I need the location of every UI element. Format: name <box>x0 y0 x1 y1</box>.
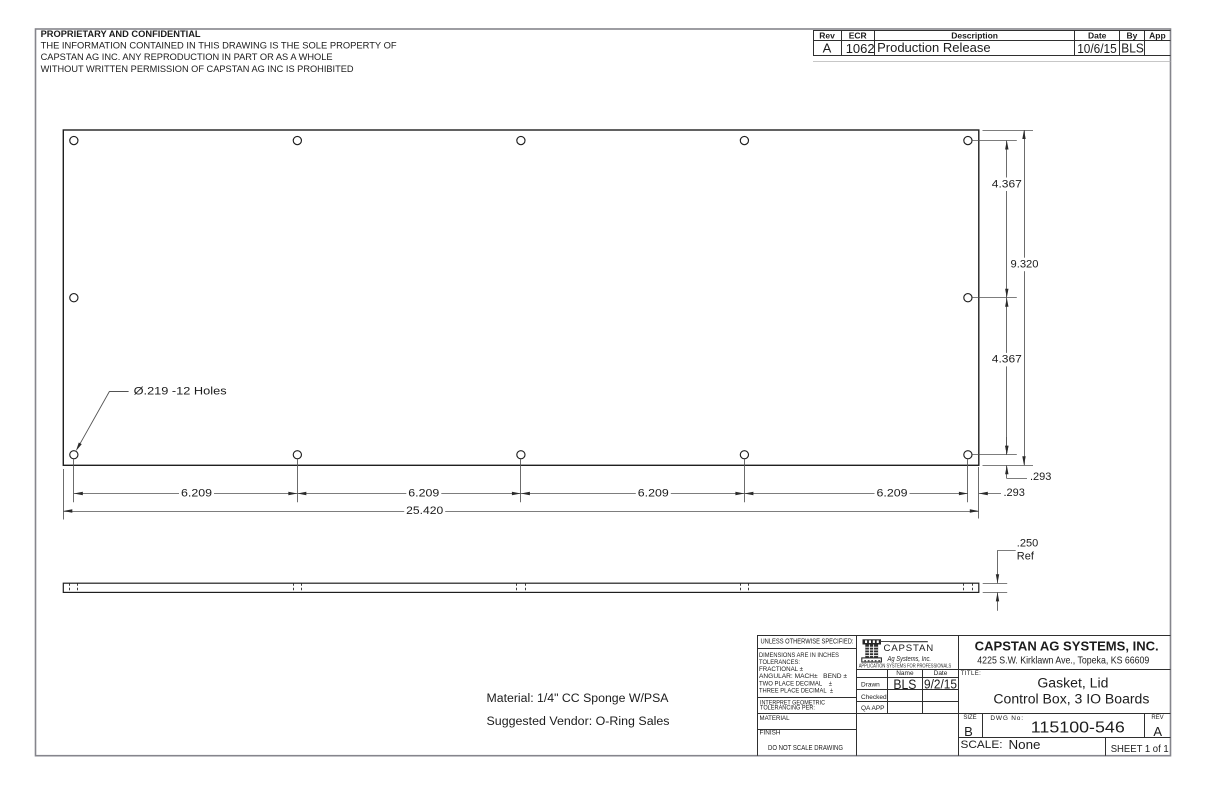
svg-text:Name: Name <box>896 670 914 677</box>
svg-text:4225 S.W. Kirklawn Ave., Topek: 4225 S.W. Kirklawn Ave., Topeka, KS 6660… <box>977 655 1149 667</box>
svg-text:Rev: Rev <box>819 31 835 41</box>
svg-text:6.209: 6.209 <box>181 487 212 499</box>
svg-text:MATERIAL: MATERIAL <box>760 715 790 722</box>
svg-text:DO NOT SCALE DRAWING: DO NOT SCALE DRAWING <box>768 745 843 752</box>
svg-text:WITHOUT WRITTEN PERMISSION OF: WITHOUT WRITTEN PERMISSION OF CAPSTAN AG… <box>41 64 354 75</box>
svg-text:4.367: 4.367 <box>992 178 1022 190</box>
svg-text:CAPSTAN AG INC. ANY REPRODUCTI: CAPSTAN AG INC. ANY REPRODUCTION IN PART… <box>41 52 333 63</box>
svg-text:FINISH: FINISH <box>760 730 781 737</box>
svg-text:Suggested Vendor: O-Ring Sales: Suggested Vendor: O-Ring Sales <box>487 716 670 728</box>
svg-text:6.209: 6.209 <box>408 487 439 499</box>
svg-text:Date: Date <box>1088 31 1107 41</box>
svg-text:THREE PLACE DECIMAL ±: THREE PLACE DECIMAL ± <box>759 688 833 695</box>
svg-text:Material: 1/4" CC Sponge W/PSA: Material: 1/4" CC Sponge W/PSA <box>487 693 669 705</box>
svg-text:APPLICATION SYSTEMS FOR PROFES: APPLICATION SYSTEMS FOR PROFESSIONALS <box>859 664 952 670</box>
svg-text:DIMENSIONS ARE IN INCHES: DIMENSIONS ARE IN INCHES <box>759 652 839 659</box>
svg-text:BLS: BLS <box>893 677 916 692</box>
svg-text:9/2/15: 9/2/15 <box>924 677 957 691</box>
svg-text:THE INFORMATION CONTAINED IN T: THE INFORMATION CONTAINED IN THIS DRAWIN… <box>41 40 397 51</box>
svg-text:SIZE: SIZE <box>963 715 976 721</box>
svg-text:None: None <box>1009 737 1041 752</box>
svg-text:App: App <box>1149 31 1166 41</box>
svg-text:Ø.219 -12 Holes: Ø.219 -12 Holes <box>134 385 228 397</box>
svg-text:A: A <box>1153 724 1162 739</box>
svg-text:Ag Systems, Inc.: Ag Systems, Inc. <box>887 654 931 663</box>
svg-text:A: A <box>823 41 832 56</box>
svg-text:Production Release: Production Release <box>877 40 990 55</box>
svg-text:By: By <box>1126 31 1137 41</box>
svg-text:ECR: ECR <box>849 31 867 41</box>
svg-text:TOLERANCING PER:: TOLERANCING PER: <box>760 705 815 712</box>
svg-text:DWG No:: DWG No: <box>990 715 1023 722</box>
svg-text:ANGULAR: MACH± BEND ±: ANGULAR: MACH± BEND ± <box>759 673 847 680</box>
svg-text:UNLESS OTHERWISE SPECIFIED:: UNLESS OTHERWISE SPECIFIED: <box>761 638 854 645</box>
svg-text:.293: .293 <box>1030 471 1051 483</box>
svg-text:9.320: 9.320 <box>1011 259 1039 271</box>
svg-text:1062: 1062 <box>846 41 875 56</box>
svg-text:PROPRIETARY AND CONFIDENTIAL: PROPRIETARY AND CONFIDENTIAL <box>41 29 202 39</box>
svg-text:SHEET 1 of 1: SHEET 1 of 1 <box>1111 744 1169 755</box>
svg-text:25.420: 25.420 <box>406 505 443 517</box>
svg-text:Gasket, Lid: Gasket, Lid <box>1037 675 1108 690</box>
svg-text:.293: .293 <box>1004 487 1025 499</box>
svg-text:10/6/15: 10/6/15 <box>1077 41 1117 56</box>
svg-text:115100-546: 115100-546 <box>1031 719 1125 736</box>
svg-text:Description: Description <box>951 31 998 41</box>
svg-text:CAPSTAN: CAPSTAN <box>884 643 935 654</box>
svg-text:B: B <box>964 724 973 739</box>
svg-text:Control Box, 3 IO Boards: Control Box, 3 IO Boards <box>993 691 1149 706</box>
svg-text:6.209: 6.209 <box>877 487 908 499</box>
svg-text:Drawn: Drawn <box>861 682 880 689</box>
svg-text:.250: .250 <box>1017 538 1038 550</box>
svg-text:6.209: 6.209 <box>638 487 669 499</box>
svg-text:REV: REV <box>1151 715 1163 721</box>
svg-text:Checked: Checked <box>861 694 887 701</box>
svg-text:BLS: BLS <box>1121 41 1144 56</box>
svg-text:4.367: 4.367 <box>992 354 1022 366</box>
svg-text:CAPSTAN AG SYSTEMS, INC.: CAPSTAN AG SYSTEMS, INC. <box>975 640 1159 654</box>
svg-text:QA APP: QA APP <box>861 705 885 712</box>
svg-text:Ref: Ref <box>1017 550 1035 562</box>
svg-text:Date: Date <box>934 670 948 677</box>
svg-text:SCALE:: SCALE: <box>961 739 1003 751</box>
svg-text:TITLE:: TITLE: <box>961 671 981 677</box>
